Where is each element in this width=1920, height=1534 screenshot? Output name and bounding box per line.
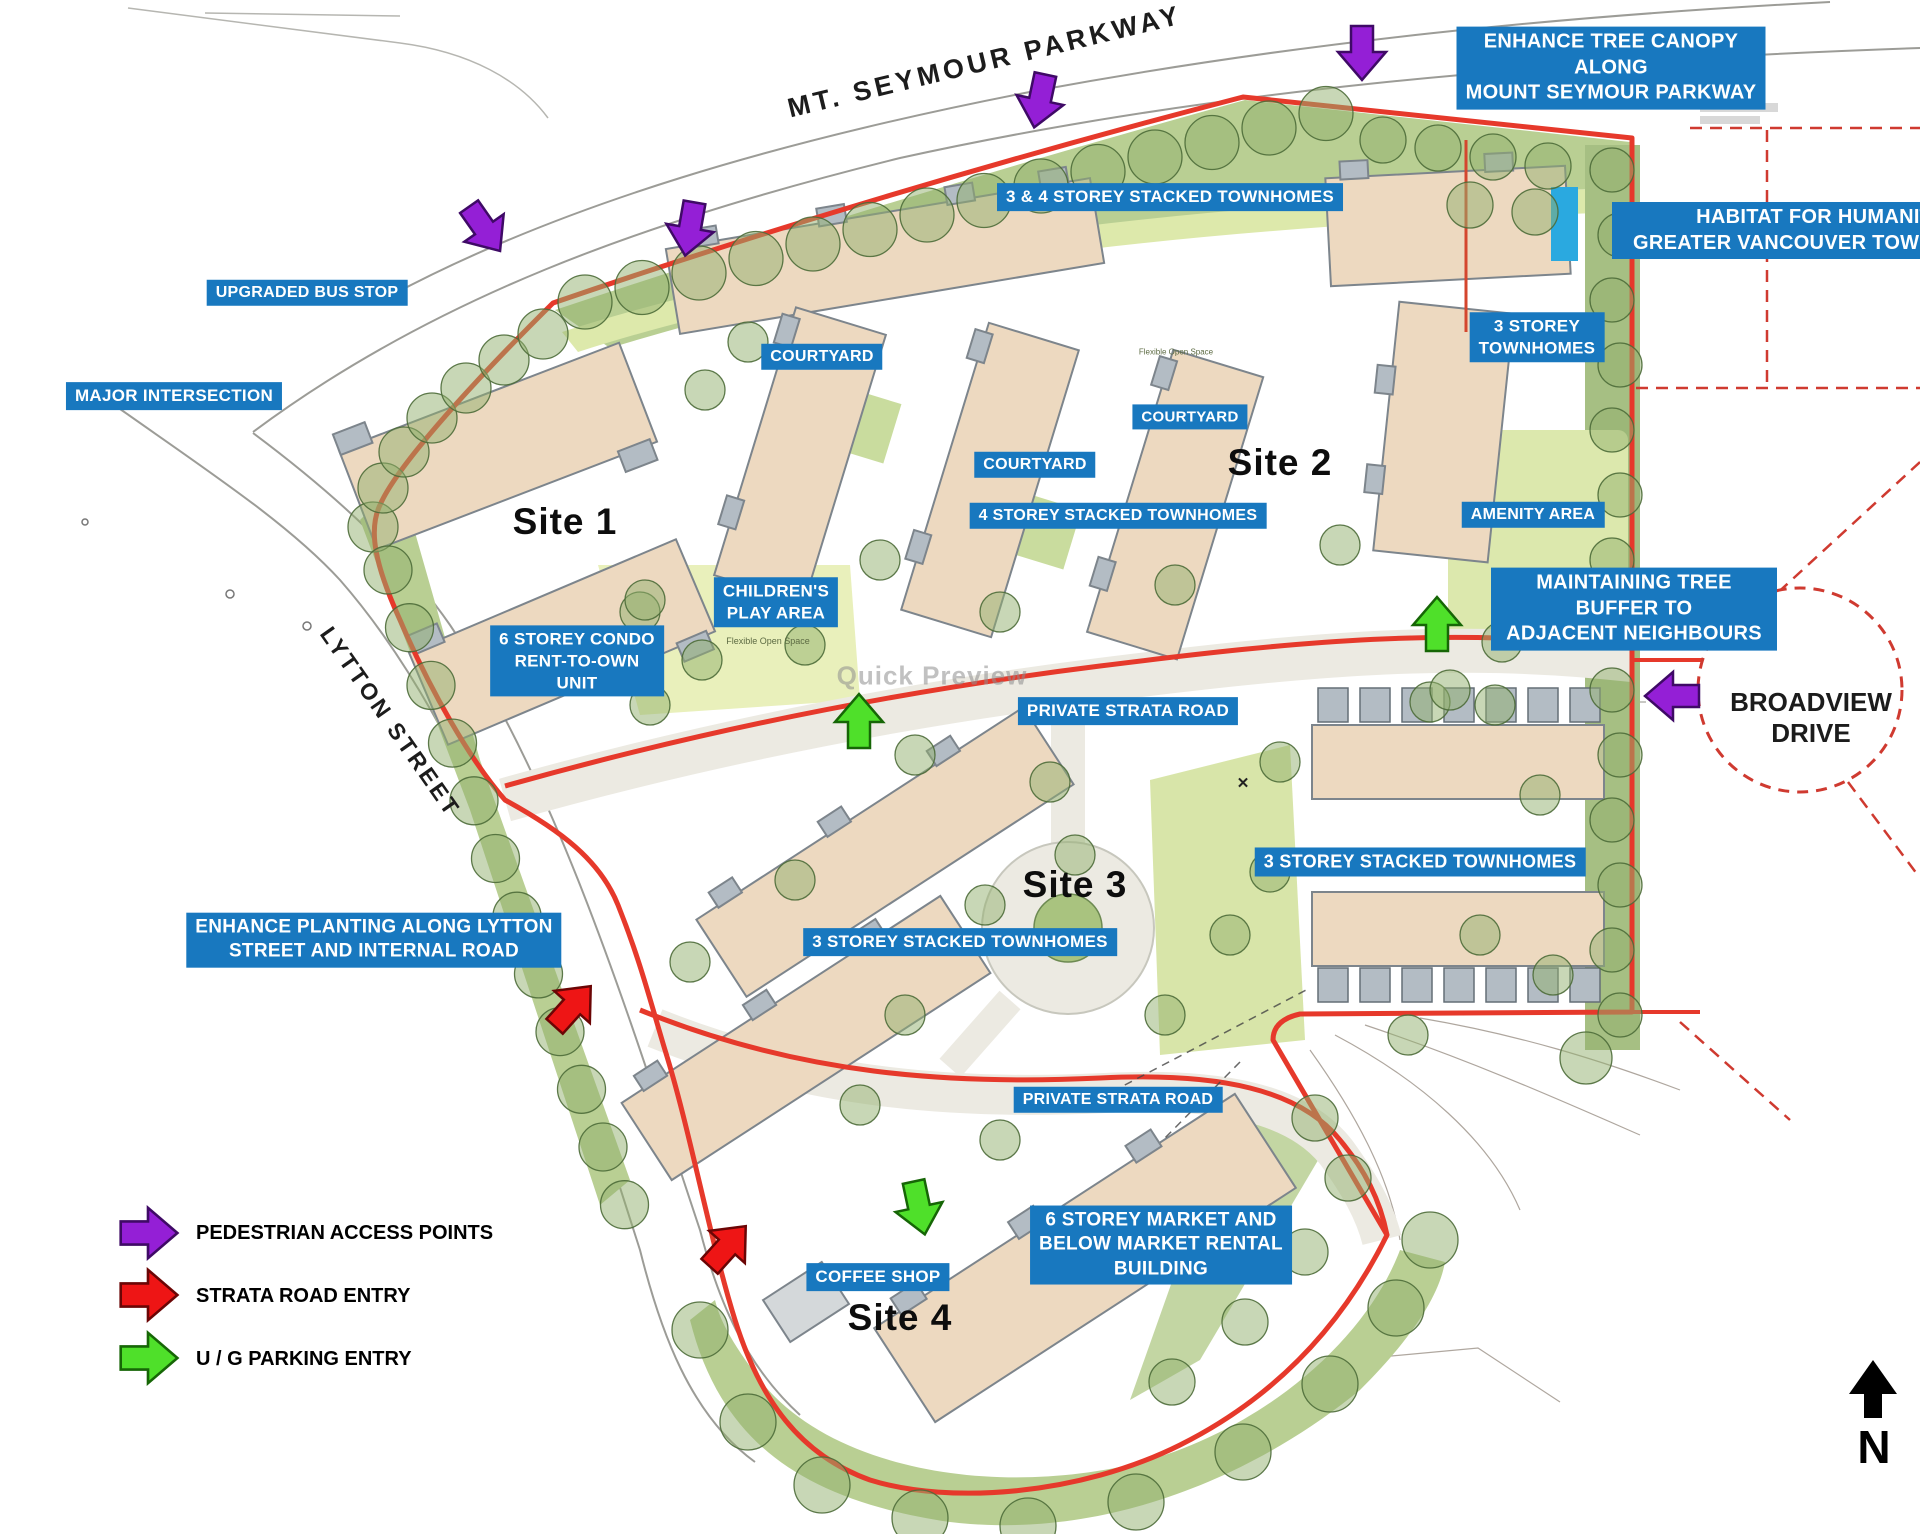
tree-icon	[860, 540, 900, 580]
sidewalk-fragments	[1700, 103, 1778, 124]
tree-icon	[630, 685, 670, 725]
tree-icon	[1325, 1155, 1371, 1201]
tree-icon	[1598, 993, 1642, 1037]
tree-icon	[785, 625, 825, 665]
tree-icon	[1447, 182, 1493, 228]
tree-icon	[625, 580, 665, 620]
tree-icon	[1590, 278, 1634, 322]
tree-icon	[1520, 775, 1560, 815]
tree-icon	[682, 640, 722, 680]
tree-icon	[1185, 116, 1239, 170]
tree-icon	[786, 217, 840, 271]
legend-strata-arrow-icon	[121, 1270, 178, 1320]
broadview-culdesac	[1698, 588, 1902, 792]
tree-icon	[895, 735, 935, 775]
tree-icon	[1155, 565, 1195, 605]
tree-icon	[1368, 1280, 1424, 1336]
tree-icon	[1560, 1032, 1612, 1084]
tree-icon	[1292, 1095, 1338, 1141]
tree-icon	[1302, 1356, 1358, 1412]
tree-icon	[1242, 101, 1296, 155]
tree-icon	[794, 1457, 850, 1513]
survey-dots	[82, 519, 311, 630]
tree-icon	[1598, 473, 1642, 517]
tree-icon	[1222, 1299, 1268, 1345]
pedestrian-arrow-icon	[1338, 26, 1386, 80]
tree-icon	[1360, 117, 1406, 163]
tree-icon	[1030, 762, 1070, 802]
tree-icon	[579, 1123, 627, 1171]
tree-icon	[1071, 145, 1125, 199]
tree-icon	[1598, 343, 1642, 387]
roundabout-island	[1034, 894, 1102, 962]
tree-icon	[1250, 852, 1290, 892]
tree-icon	[1320, 525, 1360, 565]
tree-icon	[450, 777, 498, 825]
strata-entry-arrow-icon	[692, 1210, 764, 1282]
tree-icon	[720, 1394, 776, 1450]
tree-icon	[472, 835, 520, 883]
tree-icon	[1590, 148, 1634, 192]
tree-icon	[1014, 159, 1068, 213]
tree-icon	[1598, 863, 1642, 907]
tree-icon	[1590, 538, 1634, 582]
tree-icon	[980, 592, 1020, 632]
tree-icon	[670, 942, 710, 982]
tree-icon	[1210, 915, 1250, 955]
tree-icon	[386, 604, 434, 652]
tree-icon	[429, 719, 477, 767]
tree-icon	[1590, 798, 1634, 842]
tree-icon	[1475, 685, 1515, 725]
tree-icon	[840, 1085, 880, 1125]
tree-icon	[1590, 408, 1634, 452]
legend-parking-arrow-icon	[121, 1333, 178, 1383]
tree-icon	[728, 322, 768, 362]
tree-icon	[1388, 1015, 1428, 1055]
legend-pedestrian-arrow-icon	[121, 1208, 178, 1258]
tree-icon	[1149, 1359, 1195, 1405]
tree-icon	[1598, 603, 1642, 647]
tree-icon	[558, 275, 612, 329]
tree-icon	[1145, 995, 1185, 1035]
pedestrian-arrow-icon	[449, 193, 519, 265]
tree-icon	[1215, 1424, 1271, 1480]
tree-icon	[843, 203, 897, 257]
tree-icon	[1512, 189, 1558, 235]
parking-entry-arrow-icon	[890, 1177, 948, 1240]
tree-icon	[1108, 1474, 1164, 1530]
tree-icon	[1128, 130, 1182, 184]
tree-icon	[1430, 670, 1470, 710]
site-plan-map	[0, 0, 1920, 1534]
tree-icon	[615, 261, 669, 315]
pedestrian-arrow-icon	[1011, 70, 1069, 133]
tree-icon	[558, 1065, 606, 1113]
tree-icon	[900, 188, 954, 242]
tree-icon	[1470, 134, 1516, 180]
tree-icon	[965, 885, 1005, 925]
tree-icon	[364, 546, 412, 594]
tree-icon	[672, 246, 726, 300]
tree-icon	[1299, 87, 1353, 141]
tree-icon	[518, 309, 568, 359]
tree-icon	[1282, 1229, 1328, 1275]
tree-icon	[1525, 143, 1571, 189]
tree-icon	[672, 1302, 728, 1358]
tree-icon	[1402, 1212, 1458, 1268]
tree-icon	[685, 370, 725, 410]
tree-icon	[1460, 915, 1500, 955]
tree-icon	[407, 661, 455, 709]
tree-icon	[729, 232, 783, 286]
north-arrow-icon	[1849, 1360, 1897, 1418]
tree-icon	[957, 174, 1011, 228]
tree-icon	[775, 860, 815, 900]
tree-icon	[493, 892, 541, 940]
tree-icon	[1598, 213, 1642, 257]
tree-icon	[1055, 835, 1095, 875]
tree-icon	[1482, 622, 1522, 662]
tree-icon	[1598, 733, 1642, 777]
tree-icon	[885, 995, 925, 1035]
tree-icon	[1590, 928, 1634, 972]
legend-arrow-icons	[121, 1208, 178, 1383]
site-plan-page: { "streets": { "parkway": "MT. SEYMOUR P…	[0, 0, 1920, 1534]
tree-icon	[1415, 125, 1461, 171]
tree-icon	[1260, 742, 1300, 782]
tree-icon	[980, 1120, 1020, 1160]
tree-icon	[1533, 955, 1573, 995]
pedestrian-arrow-icon	[1645, 672, 1699, 720]
tree-icon	[1590, 668, 1634, 712]
tree-icon	[601, 1181, 649, 1229]
